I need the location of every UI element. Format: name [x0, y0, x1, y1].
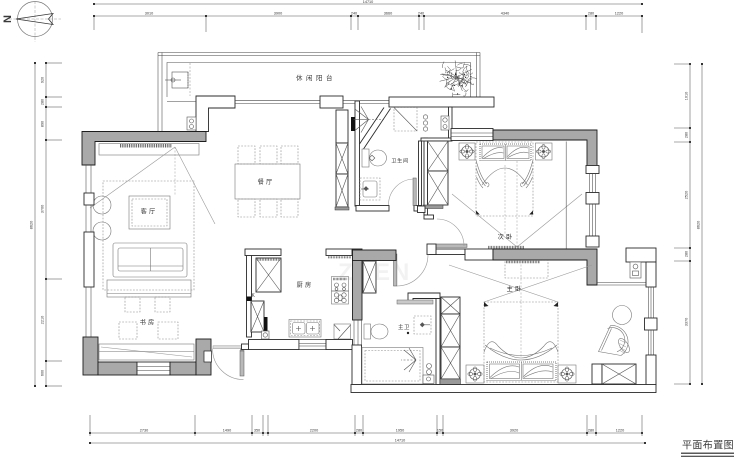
svg-text:240: 240	[418, 12, 424, 16]
svg-text:主卧: 主卧	[507, 285, 524, 293]
svg-text:2210: 2210	[41, 316, 45, 324]
svg-text:240: 240	[351, 12, 357, 16]
svg-text:150: 150	[437, 429, 443, 433]
svg-text:1950: 1950	[396, 429, 404, 433]
svg-text:N: N	[2, 15, 14, 23]
svg-text:280: 280	[588, 12, 594, 16]
svg-text:600: 600	[41, 370, 45, 376]
svg-text:3920: 3920	[510, 429, 518, 433]
svg-text:卫生间: 卫生间	[391, 157, 408, 165]
svg-text:280: 280	[356, 429, 362, 433]
svg-text:280: 280	[685, 132, 689, 138]
svg-text:920: 920	[41, 77, 45, 83]
svg-text:1010: 1010	[685, 92, 689, 100]
svg-text:8620: 8620	[30, 221, 34, 229]
svg-text:2200: 2200	[310, 429, 318, 433]
svg-text:次卧: 次卧	[498, 233, 515, 241]
svg-text:餐厅: 餐厅	[258, 178, 275, 186]
svg-text:休闲阳台: 休闲阳台	[296, 73, 336, 82]
svg-text:3700: 3700	[41, 205, 45, 213]
svg-text:890: 890	[41, 121, 45, 127]
svg-text:1490: 1490	[223, 429, 231, 433]
svg-text:3900: 3900	[274, 12, 282, 16]
svg-text:3370: 3370	[685, 318, 689, 326]
svg-text:1220: 1220	[616, 429, 624, 433]
svg-text:主卫: 主卫	[398, 323, 410, 331]
svg-text:8620: 8620	[697, 221, 701, 229]
svg-text:3660: 3660	[384, 12, 392, 16]
svg-text:2520: 2520	[685, 191, 689, 199]
svg-text:280: 280	[685, 251, 689, 257]
svg-text:客厅: 客厅	[141, 208, 158, 216]
svg-text:14710: 14710	[363, 0, 374, 4]
svg-text:2730: 2730	[140, 429, 148, 433]
svg-text:3010: 3010	[145, 12, 153, 16]
svg-text:厨房: 厨房	[297, 281, 314, 289]
svg-text:1220: 1220	[615, 12, 623, 16]
svg-text:平面布置图: 平面布置图	[682, 440, 734, 452]
svg-text:280: 280	[588, 429, 594, 433]
svg-text:书房: 书房	[140, 319, 157, 327]
svg-text:280: 280	[41, 99, 45, 105]
svg-text:14710: 14710	[395, 439, 406, 443]
svg-text:350: 350	[254, 429, 260, 433]
svg-text:4340: 4340	[501, 12, 509, 16]
